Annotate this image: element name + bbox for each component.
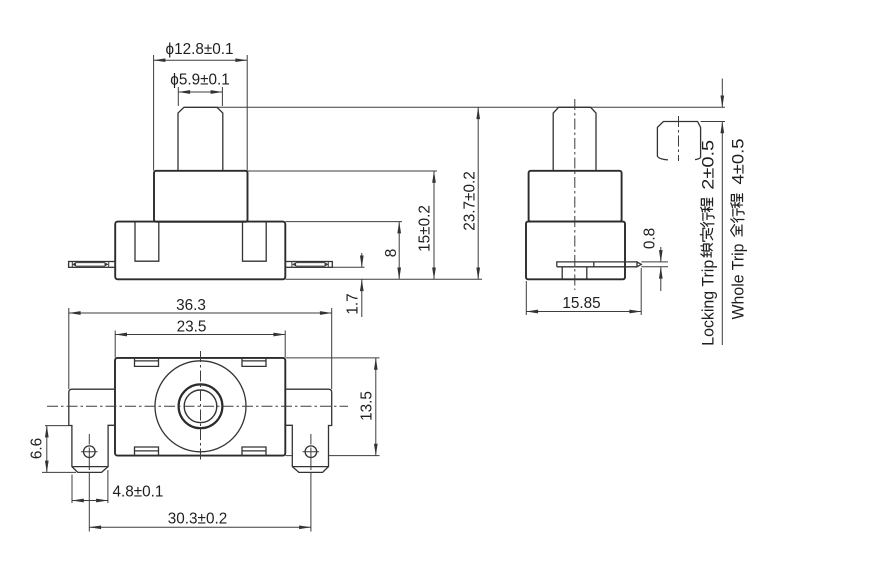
svg-text:15±0.2: 15±0.2 <box>417 205 434 252</box>
svg-text:Whole Trip: Whole Trip <box>730 244 748 320</box>
svg-text:36.3: 36.3 <box>176 297 206 314</box>
svg-text:13.5: 13.5 <box>359 391 376 421</box>
svg-text:ϕ12.8±0.1: ϕ12.8±0.1 <box>166 41 234 58</box>
svg-text:6.6: 6.6 <box>29 438 46 459</box>
svg-text:1.7: 1.7 <box>344 293 361 314</box>
svg-text:23.5: 23.5 <box>177 319 207 336</box>
svg-text:15.85: 15.85 <box>562 295 600 312</box>
svg-text:8: 8 <box>383 249 400 258</box>
svg-text:4.8±0.1: 4.8±0.1 <box>113 484 164 501</box>
svg-text:23.7±0.2: 23.7±0.2 <box>462 171 479 230</box>
svg-text:Locking Trip: Locking Trip <box>700 260 718 346</box>
svg-text:0.8: 0.8 <box>642 228 659 249</box>
svg-text:ϕ5.9±0.1: ϕ5.9±0.1 <box>170 72 230 89</box>
svg-text:30.3±0.2: 30.3±0.2 <box>168 511 227 528</box>
svg-text:2±0.5: 2±0.5 <box>700 140 718 190</box>
svg-text:4±0.5: 4±0.5 <box>730 139 748 185</box>
